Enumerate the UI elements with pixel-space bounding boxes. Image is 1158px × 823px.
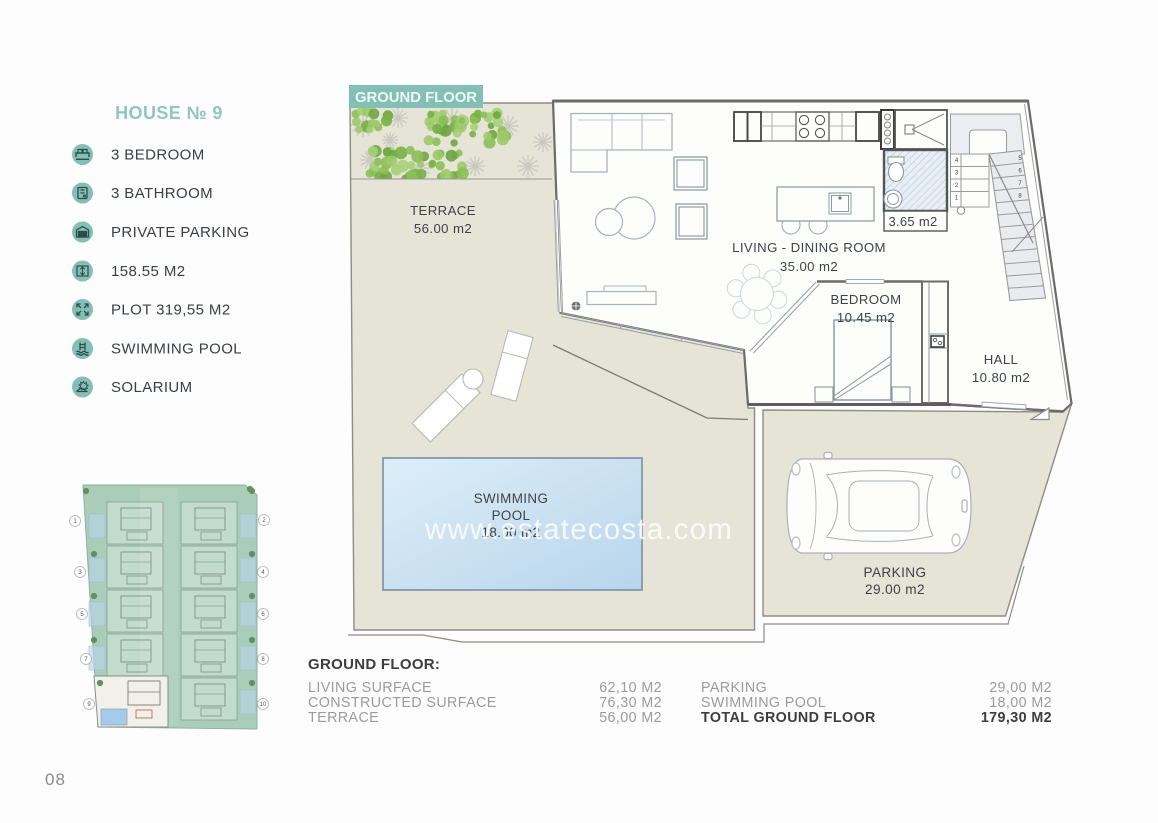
svg-text:56,00 M2: 56,00 M2 <box>599 710 662 726</box>
svg-text:10.80 m2: 10.80 m2 <box>972 370 1030 385</box>
svg-text:GROUND FLOOR: GROUND FLOOR <box>355 89 477 106</box>
svg-text:SWIMMING POOL: SWIMMING POOL <box>701 695 826 711</box>
svg-text:62,10 M2: 62,10 M2 <box>599 680 662 696</box>
svg-text:29.00 m2: 29.00 m2 <box>865 582 925 597</box>
svg-text:www.estatecosta.com: www.estatecosta.com <box>424 513 733 546</box>
svg-text:158.55 M2: 158.55 M2 <box>111 263 185 280</box>
svg-text:TERRACE: TERRACE <box>410 203 476 218</box>
svg-text:3 BEDROOM: 3 BEDROOM <box>111 147 205 164</box>
svg-text:PARKING: PARKING <box>701 680 767 696</box>
svg-text:SOLARIUM: SOLARIUM <box>111 379 193 396</box>
svg-text:SWIMMING POOL: SWIMMING POOL <box>111 341 242 358</box>
svg-text:179,30 M2: 179,30 M2 <box>981 710 1052 726</box>
svg-text:BEDROOM: BEDROOM <box>831 292 902 307</box>
svg-text:LIVING - DINING ROOM: LIVING - DINING ROOM <box>732 240 886 255</box>
svg-text:PLOT 319,55 M2: PLOT 319,55 M2 <box>111 302 231 319</box>
svg-text:10.45 m2: 10.45 m2 <box>837 310 895 325</box>
svg-text:HOUSE № 9: HOUSE № 9 <box>115 103 223 123</box>
svg-text:CONSTRUCTED SURFACE: CONSTRUCTED SURFACE <box>308 695 497 711</box>
svg-text:3 BATHROOM: 3 BATHROOM <box>111 185 213 202</box>
svg-text:35.00 m2: 35.00 m2 <box>780 259 838 274</box>
svg-text:SWIMMING: SWIMMING <box>474 491 549 506</box>
svg-text:08: 08 <box>45 770 66 789</box>
svg-text:HALL: HALL <box>984 352 1019 367</box>
svg-text:TERRACE: TERRACE <box>308 710 379 726</box>
svg-text:PARKING: PARKING <box>864 565 927 580</box>
svg-text:10: 10 <box>260 702 267 708</box>
svg-text:76,30 M2: 76,30 M2 <box>599 695 662 711</box>
svg-text:PRIVATE PARKING: PRIVATE PARKING <box>111 224 250 241</box>
svg-text:3.65 m2: 3.65 m2 <box>888 214 937 229</box>
svg-text:29,00 M2: 29,00 M2 <box>989 680 1052 696</box>
svg-text:GROUND FLOOR:: GROUND FLOOR: <box>308 656 440 673</box>
svg-text:TOTAL GROUND FLOOR: TOTAL GROUND FLOOR <box>701 710 876 726</box>
svg-text:18,00 M2: 18,00 M2 <box>989 695 1052 711</box>
svg-text:LIVING SURFACE: LIVING SURFACE <box>308 680 432 696</box>
svg-text:56.00 m2: 56.00 m2 <box>414 221 472 236</box>
